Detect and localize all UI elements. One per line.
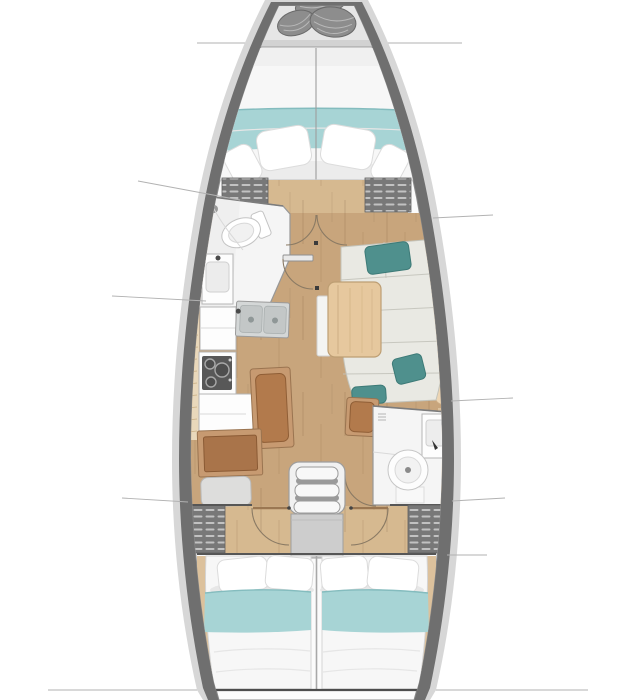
- head-faucet-icon: [216, 256, 221, 261]
- step-2: [295, 484, 339, 497]
- shower-drain-icon: [405, 467, 411, 473]
- hinge-stbd: [349, 506, 353, 510]
- step-3: [294, 501, 340, 513]
- stbd-berth-blanket: [322, 590, 429, 633]
- nav-desk: [197, 429, 263, 477]
- galley-sink-unit: [235, 301, 290, 338]
- aft-cabin-port-berth: [204, 555, 314, 689]
- head-door: [283, 255, 313, 261]
- companionway: [289, 462, 345, 558]
- door-stop-marker-2: [315, 286, 319, 290]
- vberth-pillow-port: [255, 124, 313, 172]
- nav-seat: [201, 476, 252, 507]
- engine-box: [291, 514, 343, 558]
- burner-small-1: [205, 359, 215, 369]
- head-sink-basin: [206, 262, 229, 292]
- stool-cushion: [349, 401, 375, 432]
- port-berth-blanket: [204, 590, 311, 633]
- hinge-port: [287, 506, 291, 510]
- companionway-steps: [294, 467, 340, 513]
- stbd-berth-pillow-1: [320, 555, 370, 592]
- port-berth-pillow-1: [216, 555, 269, 593]
- stove-knob-1: [229, 359, 232, 362]
- nav-desk-top: [203, 435, 257, 472]
- aft-cabin-stbd-berth: [320, 555, 429, 689]
- step-1: [296, 467, 338, 480]
- accent-pillow-forward: [364, 241, 411, 275]
- aft-head-sink-basin: [426, 420, 444, 446]
- galley-stove: [202, 356, 232, 390]
- port-berth-pillow-2: [265, 555, 315, 592]
- stove-knob-2: [229, 379, 232, 382]
- burner-small-2: [206, 377, 216, 387]
- boat-plan-svg: [0, 0, 633, 700]
- burner-large: [215, 363, 229, 377]
- salon-table: [328, 282, 381, 357]
- vberth-pillow-stbd: [319, 123, 377, 171]
- yacht-floor-plan: [0, 0, 633, 700]
- door-stop-marker-1: [314, 241, 318, 245]
- hull-locker-stbd-fwd: [365, 178, 411, 212]
- stbd-berth-pillow-2: [366, 556, 419, 594]
